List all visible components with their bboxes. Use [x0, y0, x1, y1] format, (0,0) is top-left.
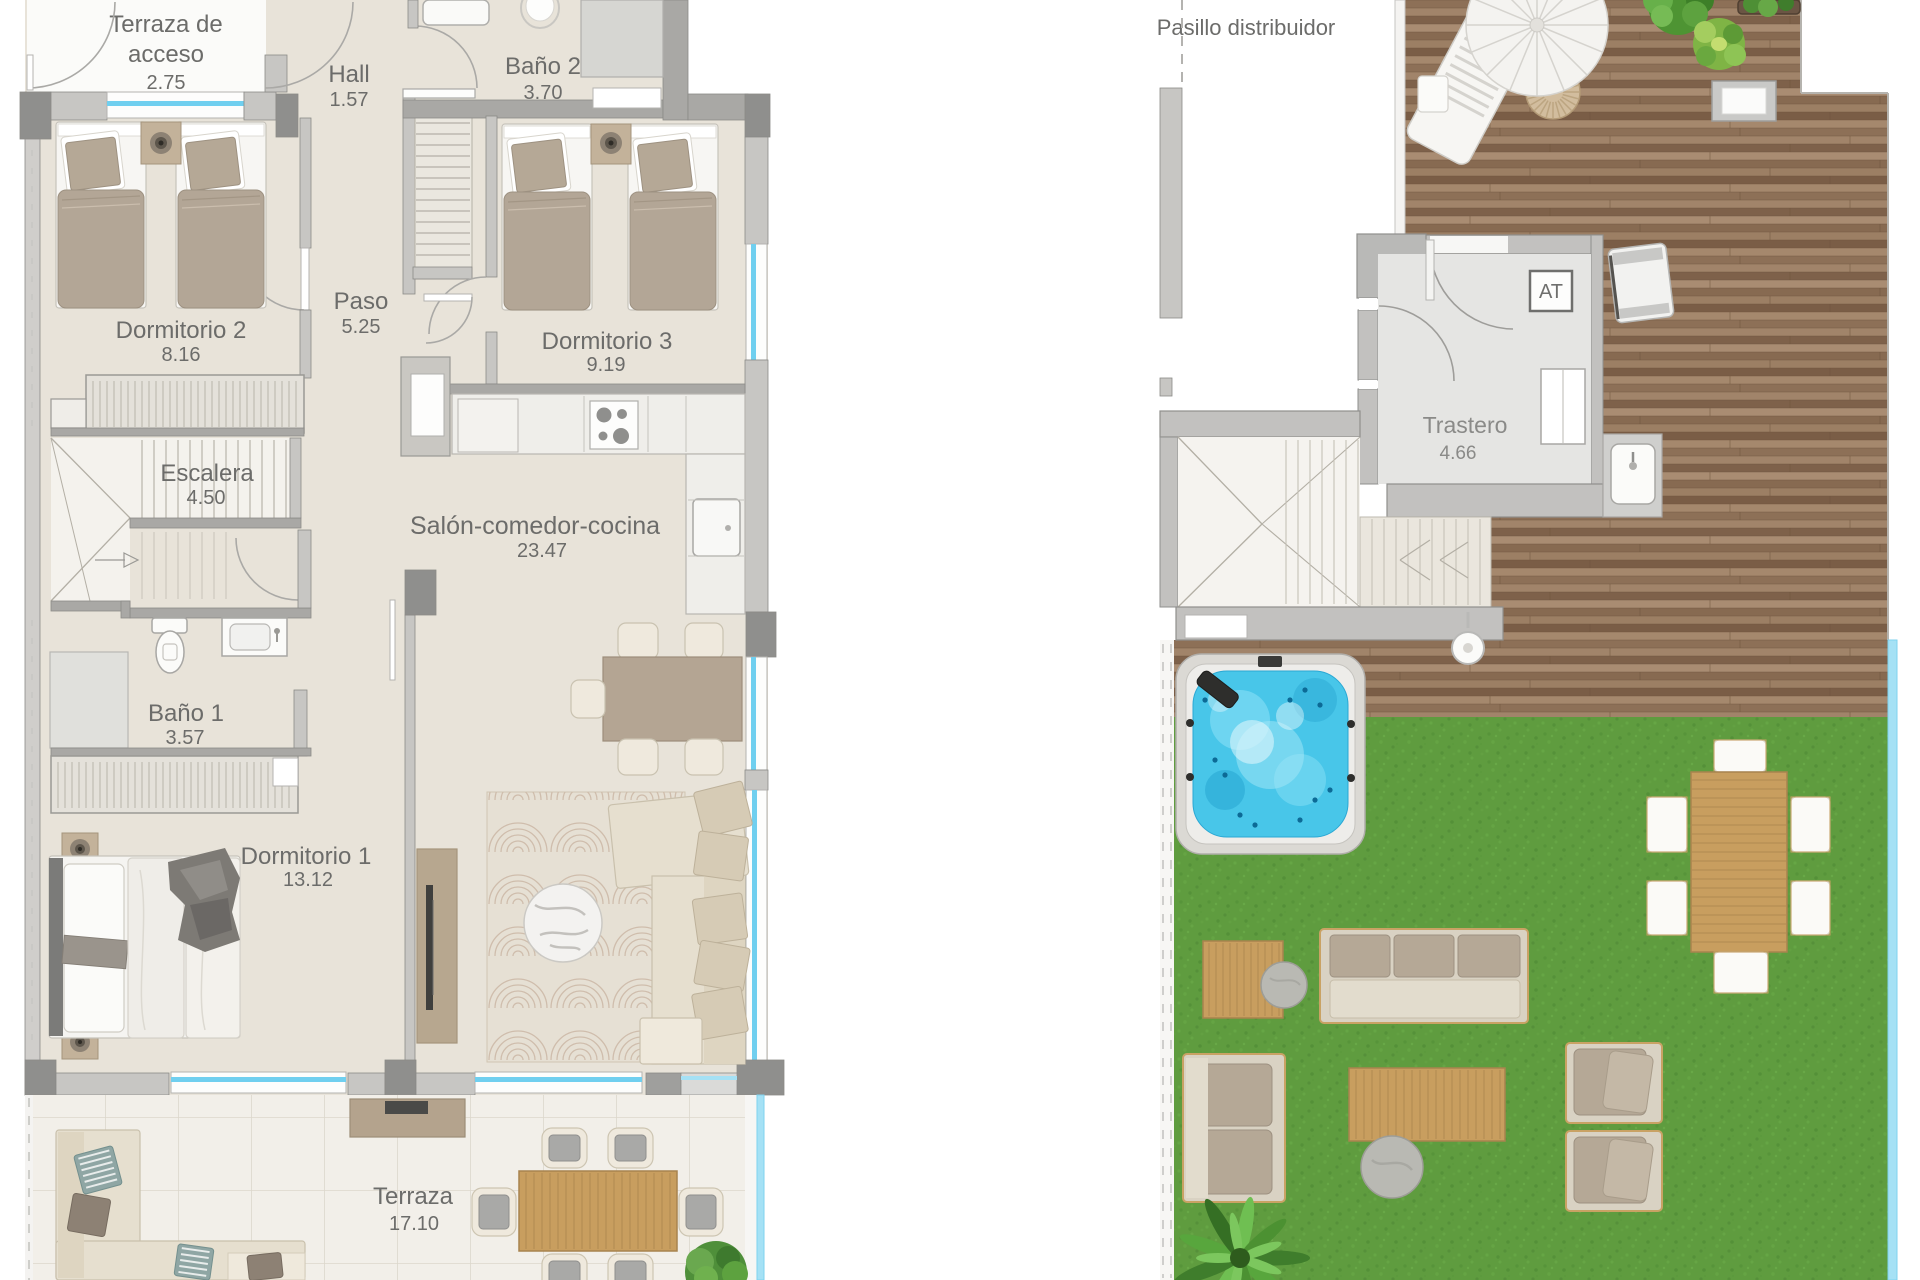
svg-text:3.57: 3.57 — [166, 727, 205, 749]
svg-text:23.47: 23.47 — [517, 540, 567, 562]
svg-text:Terraza de: Terraza de — [109, 11, 222, 38]
svg-text:2.75: 2.75 — [147, 72, 186, 94]
svg-text:Hall: Hall — [328, 61, 369, 88]
svg-text:AT: AT — [1539, 281, 1563, 303]
svg-text:8.16: 8.16 — [162, 344, 201, 366]
svg-text:Terraza: Terraza — [373, 1183, 454, 1210]
svg-text:9.19: 9.19 — [587, 354, 626, 376]
svg-text:Dormitorio 2: Dormitorio 2 — [116, 317, 247, 344]
svg-text:Dormitorio 3: Dormitorio 3 — [542, 328, 673, 355]
svg-text:13.12: 13.12 — [283, 869, 333, 891]
svg-text:Dormitorio 1: Dormitorio 1 — [241, 843, 372, 870]
svg-text:17.10: 17.10 — [389, 1213, 439, 1235]
svg-text:4.66: 4.66 — [1440, 443, 1477, 464]
svg-text:1.57: 1.57 — [330, 89, 369, 111]
svg-text:Escalera: Escalera — [160, 460, 254, 487]
svg-text:Baño 2: Baño 2 — [505, 53, 581, 80]
svg-text:Trastero: Trastero — [1423, 412, 1508, 438]
svg-text:5.25: 5.25 — [342, 316, 381, 338]
svg-text:Baño 1: Baño 1 — [148, 700, 224, 727]
svg-text:Paso: Paso — [334, 288, 389, 315]
svg-text:3.70: 3.70 — [524, 82, 563, 104]
svg-text:acceso: acceso — [128, 41, 204, 68]
svg-text:4.50: 4.50 — [187, 487, 226, 509]
svg-text:Salón-comedor-cocina: Salón-comedor-cocina — [410, 512, 660, 540]
svg-text:Pasillo distribuidor: Pasillo distribuidor — [1157, 15, 1336, 40]
